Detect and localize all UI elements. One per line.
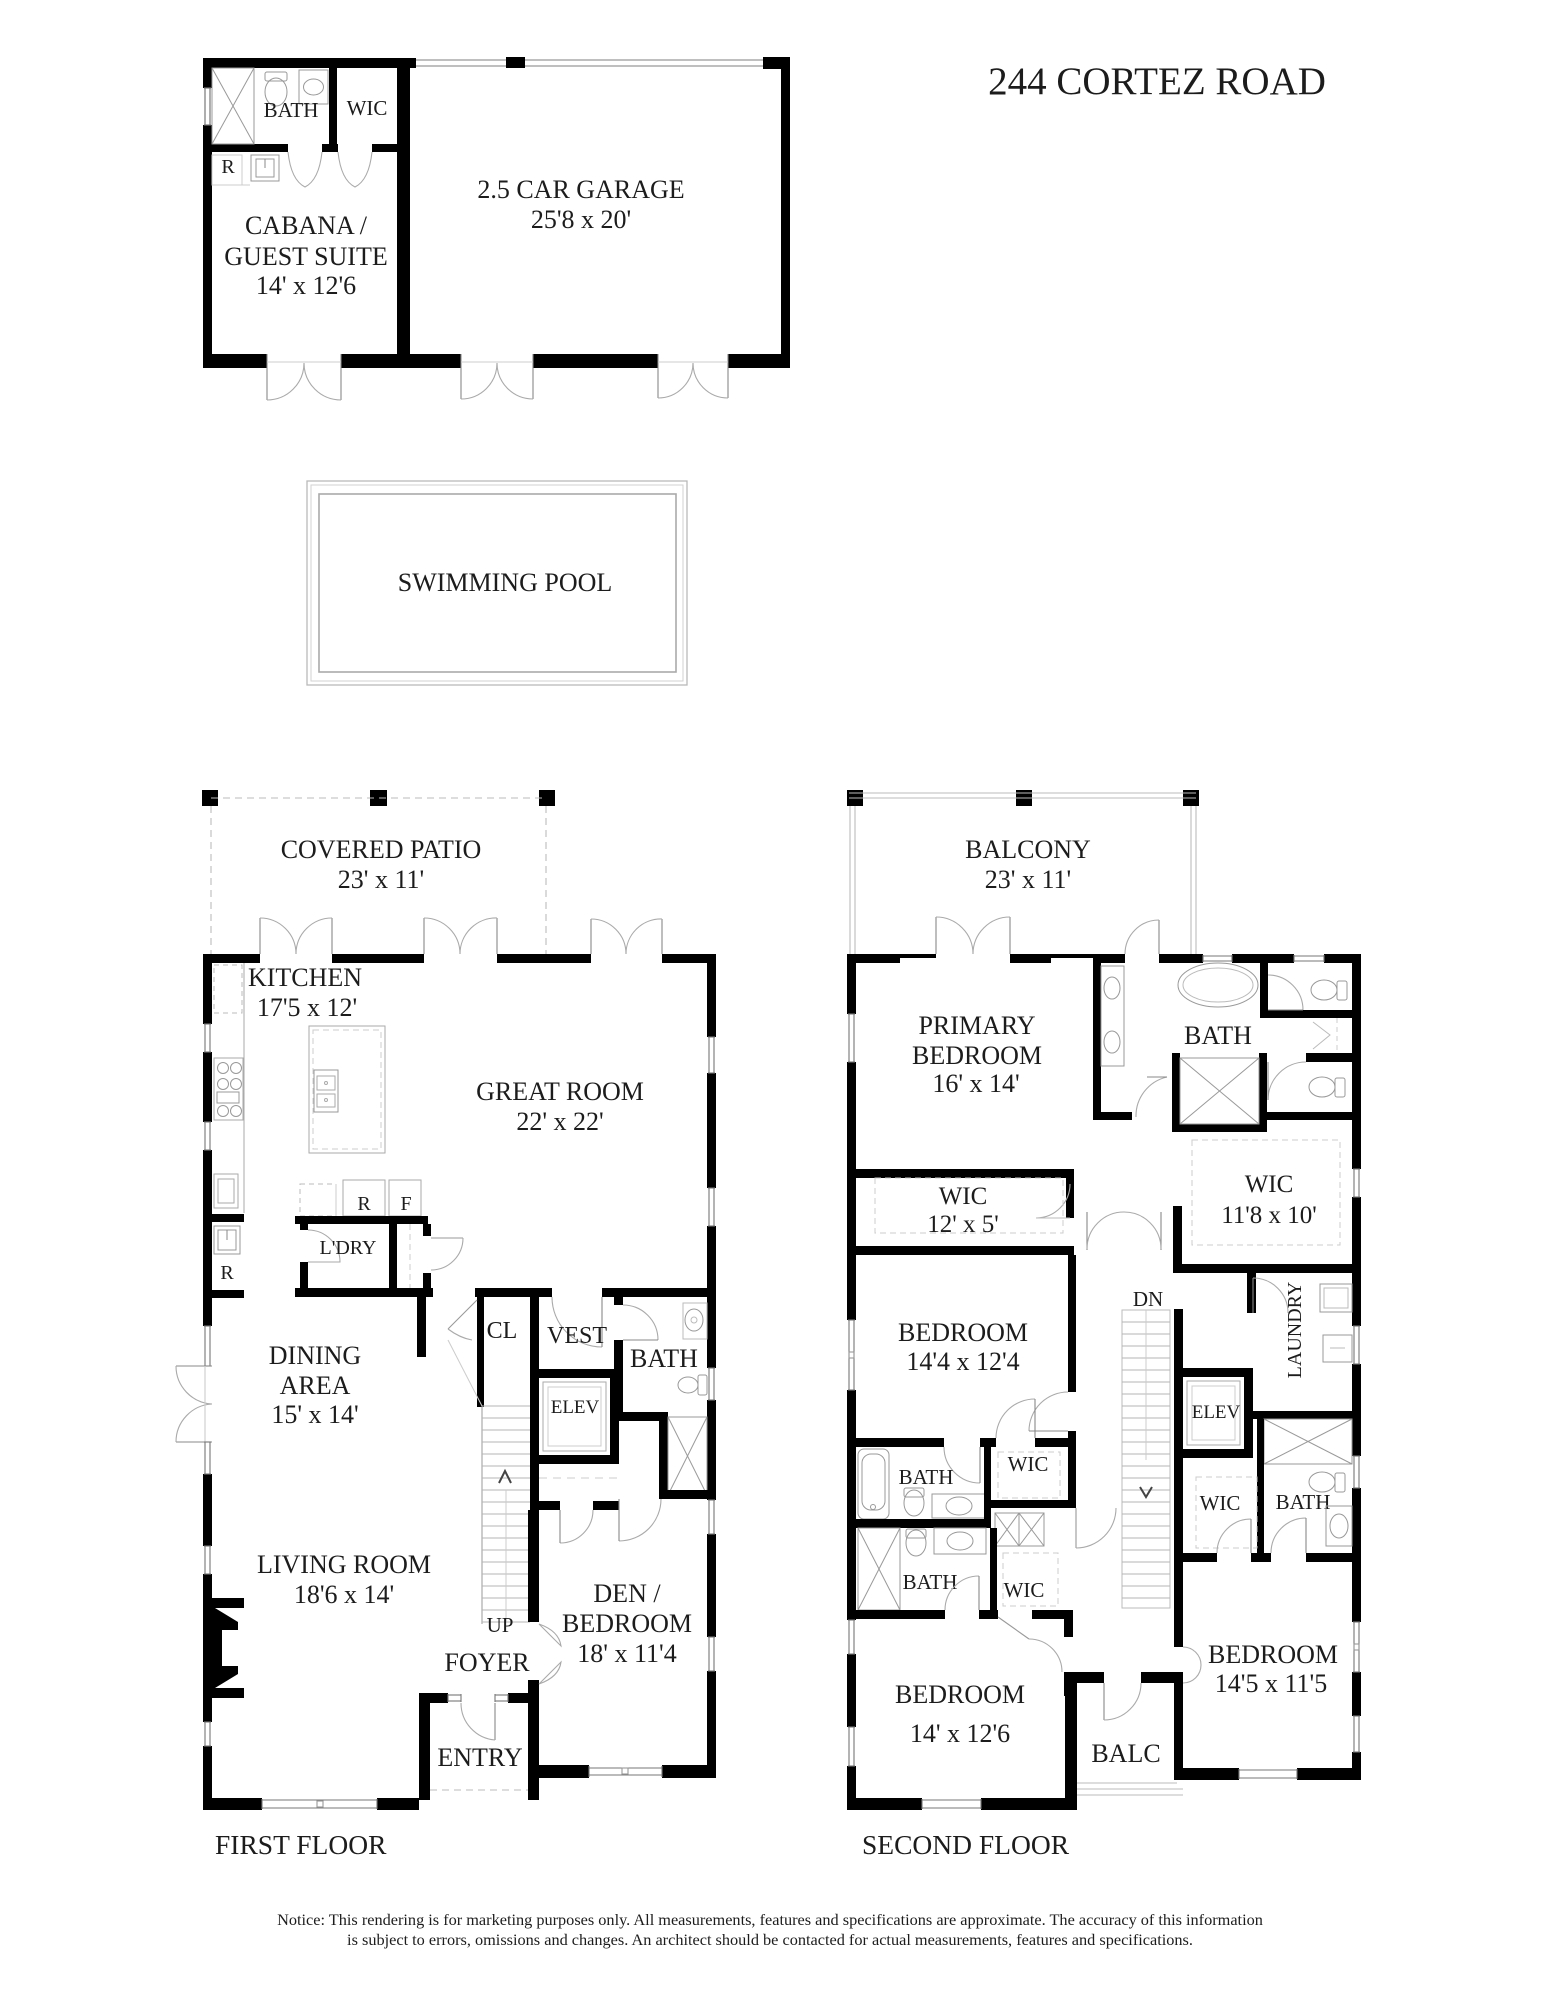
svg-text:23' x 11': 23' x 11' — [985, 865, 1071, 894]
svg-text:DINING: DINING — [269, 1341, 361, 1370]
svg-text:2.5 CAR GARAGE: 2.5 CAR GARAGE — [477, 175, 684, 204]
svg-text:14' x 12'6: 14' x 12'6 — [256, 271, 356, 300]
svg-text:18' x 11'4: 18' x 11'4 — [577, 1639, 676, 1668]
svg-text:14'5 x 11'5: 14'5 x 11'5 — [1215, 1669, 1327, 1698]
svg-text:PRIMARY: PRIMARY — [918, 1011, 1035, 1040]
svg-text:BALC: BALC — [1091, 1739, 1160, 1768]
svg-text:WIC: WIC — [347, 96, 388, 120]
svg-text:BATH: BATH — [630, 1344, 698, 1373]
svg-text:14' x 12'6: 14' x 12'6 — [910, 1719, 1010, 1748]
svg-text:BATH: BATH — [903, 1570, 958, 1594]
svg-text:ENTRY: ENTRY — [437, 1743, 522, 1772]
svg-text:SWIMMING POOL: SWIMMING POOL — [398, 568, 613, 597]
svg-text:WIC: WIC — [1200, 1491, 1241, 1515]
svg-text:14'4 x 12'4: 14'4 x 12'4 — [906, 1347, 1019, 1376]
svg-text:R: R — [357, 1193, 371, 1215]
svg-text:KITCHEN: KITCHEN — [248, 963, 362, 992]
svg-text:WIC: WIC — [1008, 1452, 1049, 1476]
svg-text:L'DRY: L'DRY — [320, 1237, 377, 1259]
svg-text:UP: UP — [487, 1613, 514, 1637]
svg-text:WIC: WIC — [939, 1183, 988, 1210]
svg-text:ELEV: ELEV — [1192, 1402, 1241, 1423]
svg-text:23' x 11': 23' x 11' — [338, 865, 424, 894]
svg-text:VEST: VEST — [547, 1323, 607, 1349]
svg-text:244 CORTEZ ROAD: 244 CORTEZ ROAD — [988, 60, 1326, 103]
svg-text:GUEST SUITE: GUEST SUITE — [224, 242, 387, 271]
svg-text:AREA: AREA — [280, 1371, 351, 1400]
svg-text:Notice: This rendering is for: Notice: This rendering is for marketing … — [277, 1910, 1263, 1929]
svg-text:GREAT ROOM: GREAT ROOM — [476, 1077, 644, 1106]
svg-text:BEDROOM: BEDROOM — [898, 1318, 1028, 1347]
svg-text:CABANA /: CABANA / — [245, 211, 368, 240]
svg-text:BATH: BATH — [1276, 1490, 1331, 1514]
svg-text:BALCONY: BALCONY — [965, 835, 1091, 864]
svg-text:BATH: BATH — [899, 1465, 954, 1489]
svg-text:WIC: WIC — [1004, 1578, 1045, 1602]
svg-text:R: R — [221, 156, 235, 178]
svg-text:16' x 14': 16' x 14' — [932, 1069, 1019, 1098]
svg-text:FOYER: FOYER — [444, 1648, 530, 1677]
svg-text:BEDROOM: BEDROOM — [1208, 1640, 1338, 1669]
svg-text:17'5 x 12': 17'5 x 12' — [257, 993, 357, 1022]
svg-text:COVERED PATIO: COVERED PATIO — [281, 835, 482, 864]
svg-text:F: F — [400, 1193, 411, 1215]
svg-text:12' x 5': 12' x 5' — [927, 1211, 999, 1238]
svg-text:DN: DN — [1133, 1287, 1163, 1311]
svg-text:FIRST FLOOR: FIRST FLOOR — [215, 1829, 387, 1860]
svg-text:BATH: BATH — [264, 98, 319, 122]
svg-text:15' x 14': 15' x 14' — [271, 1400, 358, 1429]
svg-text:22' x 22': 22' x 22' — [516, 1107, 603, 1136]
svg-text:ELEV: ELEV — [551, 1397, 600, 1418]
svg-text:SECOND FLOOR: SECOND FLOOR — [862, 1829, 1070, 1860]
svg-text:BEDROOM: BEDROOM — [912, 1041, 1042, 1070]
svg-text:CL: CL — [487, 1318, 518, 1344]
svg-text:18'6 x 14': 18'6 x 14' — [294, 1580, 394, 1609]
svg-text:LAUNDRY: LAUNDRY — [1284, 1282, 1306, 1379]
svg-text:DEN /: DEN / — [593, 1579, 661, 1608]
svg-text:WIC: WIC — [1245, 1171, 1294, 1198]
svg-text:BATH: BATH — [1184, 1021, 1252, 1050]
svg-text:11'8 x 10': 11'8 x 10' — [1221, 1202, 1317, 1229]
svg-text:BEDROOM: BEDROOM — [562, 1609, 692, 1638]
svg-text:is subject to errors, omission: is subject to errors, omissions and chan… — [347, 1930, 1193, 1949]
svg-text:25'8 x 20': 25'8 x 20' — [531, 205, 631, 234]
svg-text:BEDROOM: BEDROOM — [895, 1680, 1025, 1709]
svg-text:R: R — [220, 1262, 234, 1284]
svg-text:LIVING ROOM: LIVING ROOM — [257, 1550, 431, 1579]
